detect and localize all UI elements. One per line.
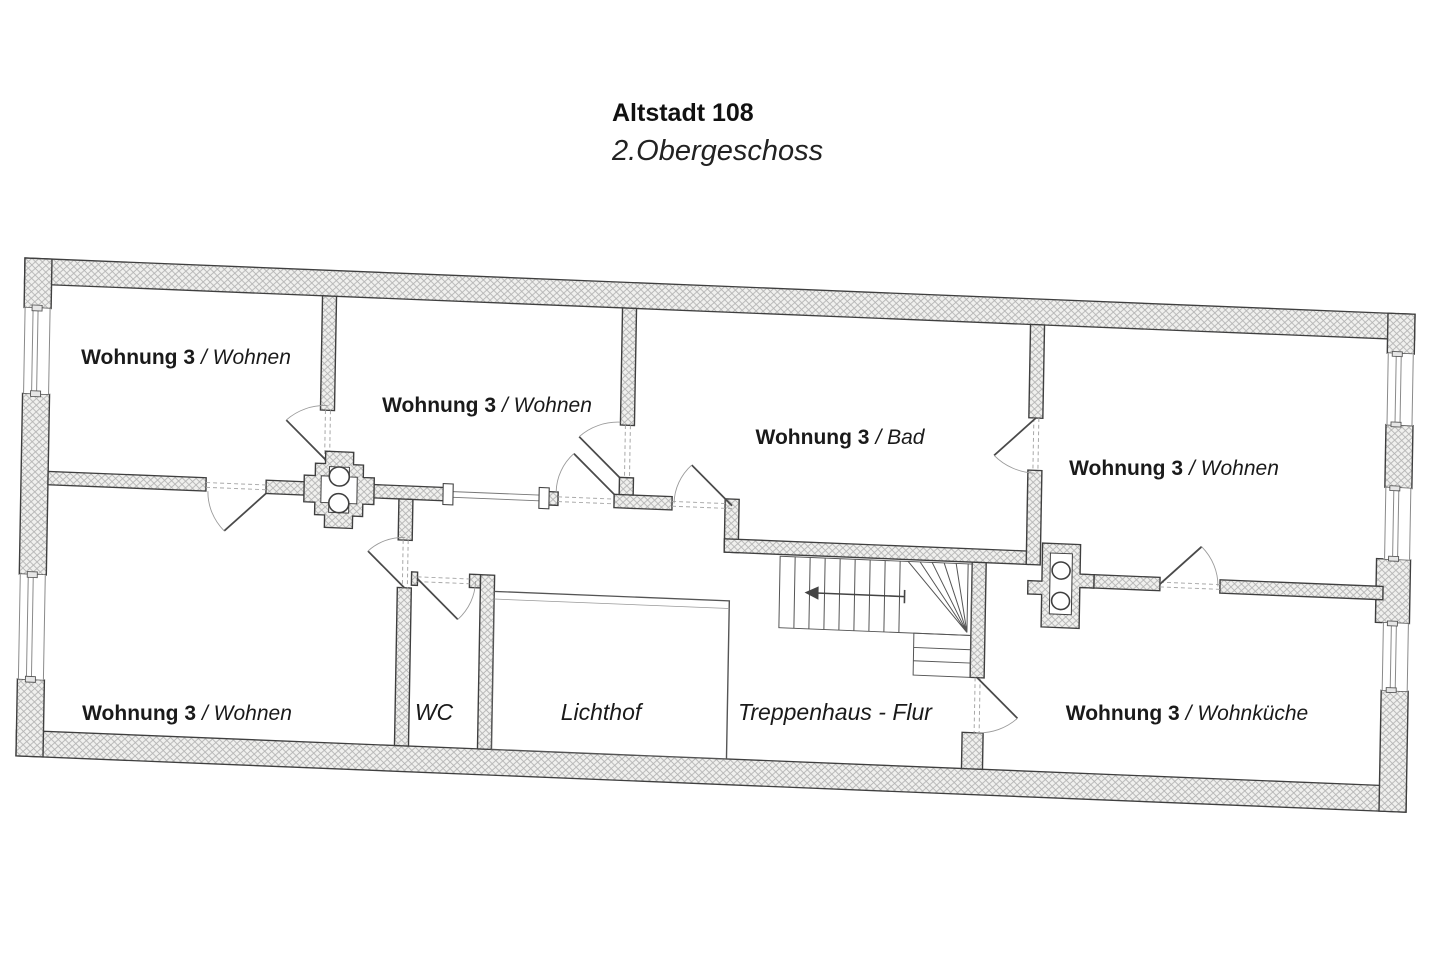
interior-wall — [371, 484, 451, 501]
interior-wall — [48, 471, 206, 491]
chimney-flue-circle — [329, 493, 349, 513]
floor-plan-canvas: Wohnung 3/ Wohnen Wohnung 3/ Wohnen Wohn… — [0, 0, 1440, 962]
interior-wall — [1220, 580, 1383, 600]
room-label-bad: Wohnung 3/ Bad — [756, 426, 926, 449]
room-label-wohnen-top-middle: Wohnung 3/ Wohnen — [382, 394, 592, 417]
outer-wall-top — [25, 258, 1415, 340]
interior-wall — [398, 499, 413, 541]
room-label-wohnen-top-right: Wohnung 3/ Wohnen — [1069, 457, 1279, 480]
room-label-lichthof: Lichthof — [561, 699, 644, 725]
room-label-wohnkueche: Wohnung 3/ Wohnküche — [1066, 702, 1309, 725]
room-label-wohnen-top-left: Wohnung 3/ Wohnen — [81, 346, 291, 369]
staircase — [778, 556, 972, 677]
interior-wall — [619, 477, 633, 495]
interior-window — [443, 484, 549, 509]
lichthof-box — [491, 591, 729, 759]
outer-wall-left — [24, 258, 52, 309]
outer-wall-left — [16, 679, 44, 757]
interior-wall — [1094, 575, 1160, 591]
chimney-flue-circle — [1051, 592, 1069, 610]
chimney-flue-circle — [1052, 562, 1070, 580]
interior-wall — [1026, 470, 1042, 565]
window — [1384, 486, 1412, 562]
interior-wall — [961, 732, 983, 769]
interior-wall — [614, 494, 672, 510]
outer-wall-right — [1379, 690, 1408, 812]
outer-wall-right — [1385, 425, 1413, 489]
interior-wall — [320, 296, 336, 411]
interior-wall — [620, 308, 636, 426]
stair-winders — [907, 561, 968, 632]
chimney-1 — [303, 450, 374, 529]
chimney-flue-circle — [329, 467, 349, 487]
room-label-wc: WC — [415, 699, 454, 725]
interior-wall — [970, 562, 986, 678]
window — [1381, 621, 1409, 693]
interior-wall — [1029, 324, 1045, 418]
window — [17, 571, 46, 683]
room-label-wohnen-bottom-left: Wohnung 3/ Wohnen — [82, 702, 292, 725]
building-plan — [16, 258, 1415, 812]
interior-wall — [394, 587, 411, 746]
interior-wall — [411, 572, 417, 586]
outer-wall-left — [19, 393, 49, 575]
outer-wall-right — [1387, 313, 1415, 354]
room-label-treppenhaus: Treppenhaus - Flur — [738, 699, 933, 725]
window — [23, 305, 52, 397]
floor-plan-page: Altstadt 108 2.Obergeschoss — [0, 0, 1440, 962]
window — [1386, 351, 1414, 427]
